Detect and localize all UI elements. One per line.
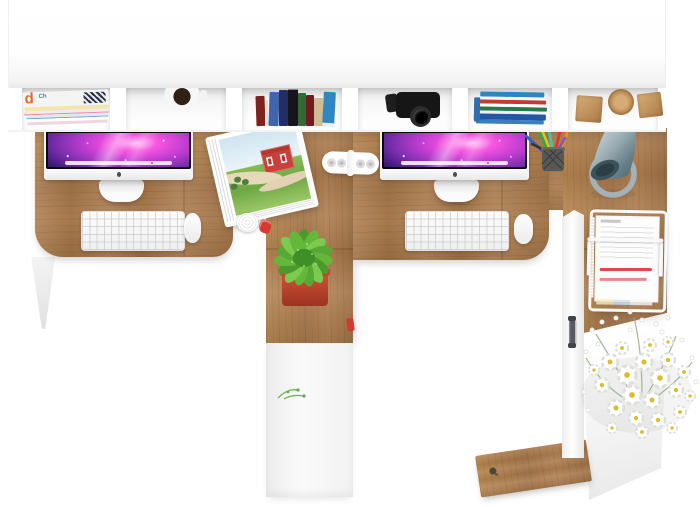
red-barn bbox=[260, 144, 295, 174]
bush bbox=[230, 183, 238, 190]
imac-chin bbox=[46, 169, 191, 180]
magazine-pattern bbox=[83, 92, 105, 104]
apple-logo-icon bbox=[117, 172, 121, 177]
wood-cube bbox=[575, 95, 603, 123]
book-row bbox=[256, 88, 340, 128]
tray-papers bbox=[594, 215, 659, 302]
mouse-left bbox=[184, 213, 201, 243]
coffee-mug bbox=[164, 88, 200, 111]
potted-plant bbox=[260, 220, 346, 312]
camera-lens bbox=[410, 106, 431, 127]
magazine-letter: d bbox=[24, 90, 34, 107]
imac-screen bbox=[382, 131, 527, 169]
organizer-hole bbox=[356, 159, 365, 168]
compartment-cubes bbox=[568, 88, 658, 130]
organizer-hole bbox=[327, 158, 336, 167]
document-tray bbox=[588, 207, 670, 312]
dock-bar bbox=[65, 161, 172, 165]
red-highlight-line bbox=[600, 278, 647, 281]
compartment-magazines: d Ch bbox=[22, 88, 110, 130]
wood-cube bbox=[637, 92, 664, 119]
green-sprig bbox=[274, 380, 314, 402]
paper-roll bbox=[237, 213, 258, 232]
center-cabinet bbox=[266, 343, 353, 497]
imac-left bbox=[44, 129, 193, 180]
imac-chin bbox=[382, 169, 527, 180]
barn-window bbox=[266, 156, 274, 166]
dock-bar bbox=[401, 161, 508, 165]
galaxy-wallpaper bbox=[48, 133, 189, 167]
organizer-hole bbox=[337, 159, 346, 168]
magazine-stack: d Ch bbox=[22, 90, 109, 129]
compartment-mug bbox=[126, 88, 226, 130]
keyboard-left bbox=[81, 211, 185, 251]
mouse-right bbox=[514, 214, 533, 244]
red-highlight-line bbox=[600, 268, 652, 271]
hutch-shelf-row: d Ch bbox=[8, 88, 666, 132]
key-icon bbox=[489, 467, 497, 475]
galaxy-wallpaper bbox=[384, 133, 525, 167]
paper-heading bbox=[601, 219, 621, 222]
left-desk-leg bbox=[31, 257, 55, 331]
organizer-hole bbox=[366, 160, 375, 169]
cable-organizer bbox=[322, 151, 380, 175]
imac-stand bbox=[99, 180, 144, 202]
tray-rail bbox=[587, 241, 592, 275]
tray-rail bbox=[659, 243, 664, 277]
wood-disc bbox=[608, 89, 634, 115]
compartment-bookstack bbox=[468, 88, 552, 130]
mug-handle bbox=[200, 90, 207, 101]
red-tab bbox=[346, 318, 355, 332]
keyboard-right bbox=[405, 211, 509, 251]
imac-screen bbox=[46, 131, 191, 169]
hutch-top-panel bbox=[8, 0, 666, 88]
paper-text-lines bbox=[600, 225, 654, 262]
desk-scene: d Ch bbox=[0, 0, 700, 507]
imac-right bbox=[380, 129, 529, 180]
imac-stand bbox=[434, 180, 479, 202]
organizer-clip bbox=[347, 150, 355, 176]
compartment-books bbox=[242, 88, 342, 130]
magazine-text: Ch bbox=[38, 94, 46, 100]
barn-window bbox=[280, 153, 288, 163]
apple-logo-icon bbox=[453, 172, 457, 177]
daisy-bouquet bbox=[572, 300, 700, 440]
compartment-camera bbox=[358, 88, 452, 130]
book-stack bbox=[474, 91, 551, 126]
